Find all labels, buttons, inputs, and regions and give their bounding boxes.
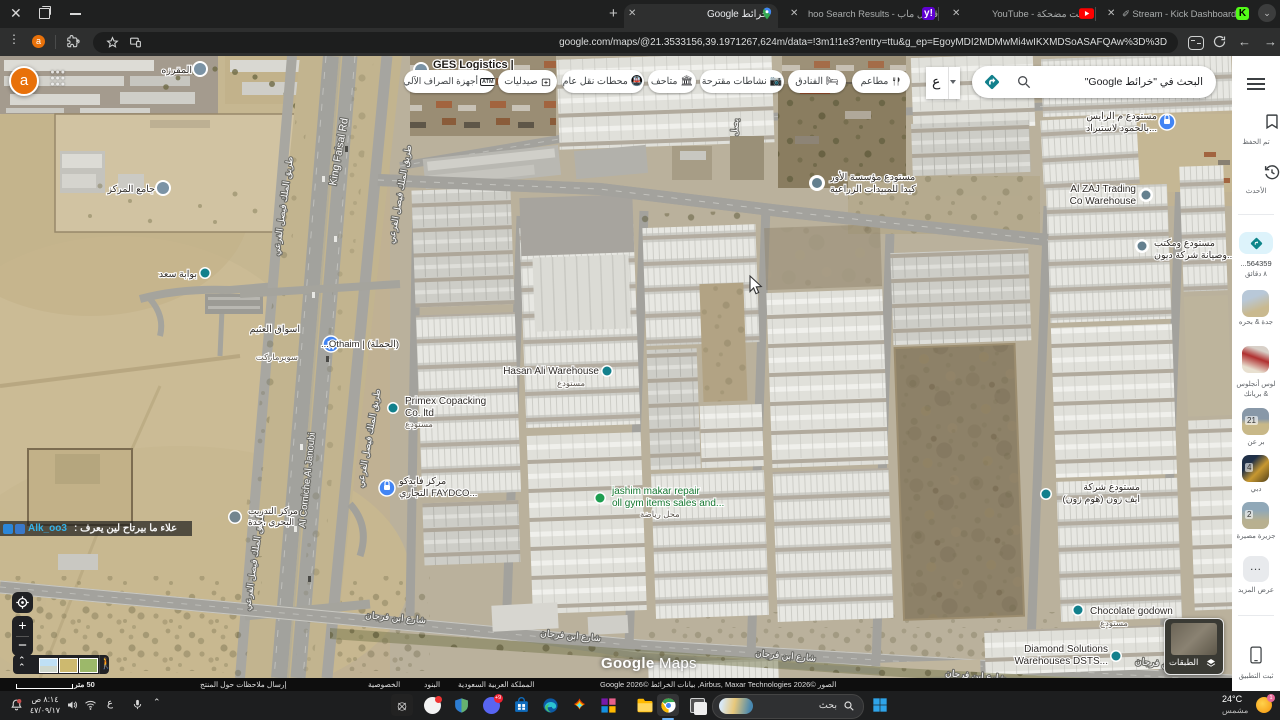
svg-text:جامع المركز: جامع المركز xyxy=(106,184,155,195)
svg-text:Diamond Solutions: Diamond Solutions xyxy=(1024,644,1108,655)
svg-text:مستودع: مستودع xyxy=(557,378,585,389)
svg-text:التجاري FAYDCO...: التجاري FAYDCO... xyxy=(399,488,477,499)
svg-text:بوابة سعد: بوابة سعد xyxy=(159,269,197,280)
svg-text:oll gym items sales and...: oll gym items sales and... xyxy=(612,498,724,509)
svg-text:Co Warehouse: Co Warehouse xyxy=(1070,196,1137,207)
svg-text:مستودع مؤسسة الأور: مستودع مؤسسة الأور xyxy=(829,171,915,183)
svg-text:Warehouses DSTS...: Warehouses DSTS... xyxy=(1014,656,1108,667)
svg-text:محل رياضة: محل رياضة xyxy=(640,509,680,520)
svg-text:اسواق العثيم: اسواق العثيم xyxy=(250,324,300,335)
svg-text:مستودع ومكتب: مستودع ومكتب xyxy=(1154,238,1215,249)
svg-text:بالحمود لاستيراد...: بالحمود لاستيراد... xyxy=(1086,123,1157,134)
svg-text:كيدا للمبيدات الزراعية: كيدا للمبيدات الزراعية xyxy=(830,184,916,195)
svg-text:مركز التدريب: مركز التدريب xyxy=(248,506,298,517)
svg-text:Hasan Ali Warehouse: Hasan Ali Warehouse xyxy=(503,366,599,377)
svg-text:مستودع: مستودع xyxy=(405,419,433,430)
svg-text:مركز فايدكو: مركز فايدكو xyxy=(398,476,446,487)
svg-text:مستودع: مستودع xyxy=(1100,618,1128,629)
svg-text:مستودع شركة: مستودع شركة xyxy=(1083,482,1140,493)
svg-text:jashim makar repair: jashim makar repair xyxy=(611,486,700,497)
svg-text:البحري ،جدة: البحري ،جدة xyxy=(248,517,294,528)
svg-text:مستودع م الرايس: مستودع م الرايس xyxy=(1086,111,1157,122)
svg-text:Primex Copacking: Primex Copacking xyxy=(405,396,486,407)
svg-text:ايف زون (هوم زون): ايف زون (هوم زون) xyxy=(1063,494,1140,505)
svg-text:يصل: يصل xyxy=(729,118,740,136)
svg-text:وصيانة شركة ديون...: وصيانة شركة ديون... xyxy=(1154,250,1232,261)
svg-text:سوبرماركت: سوبرماركت xyxy=(256,352,298,363)
svg-text:(الجملة) | Othaim...: (الجملة) | Othaim... xyxy=(321,339,399,350)
svg-text:Co. ltd: Co. ltd xyxy=(405,408,434,419)
svg-text:المقرزه: المقرزه xyxy=(161,65,192,76)
svg-text:Al ZAJ Trading: Al ZAJ Trading xyxy=(1070,184,1136,195)
svg-text:Chocolate godown: Chocolate godown xyxy=(1090,606,1173,617)
